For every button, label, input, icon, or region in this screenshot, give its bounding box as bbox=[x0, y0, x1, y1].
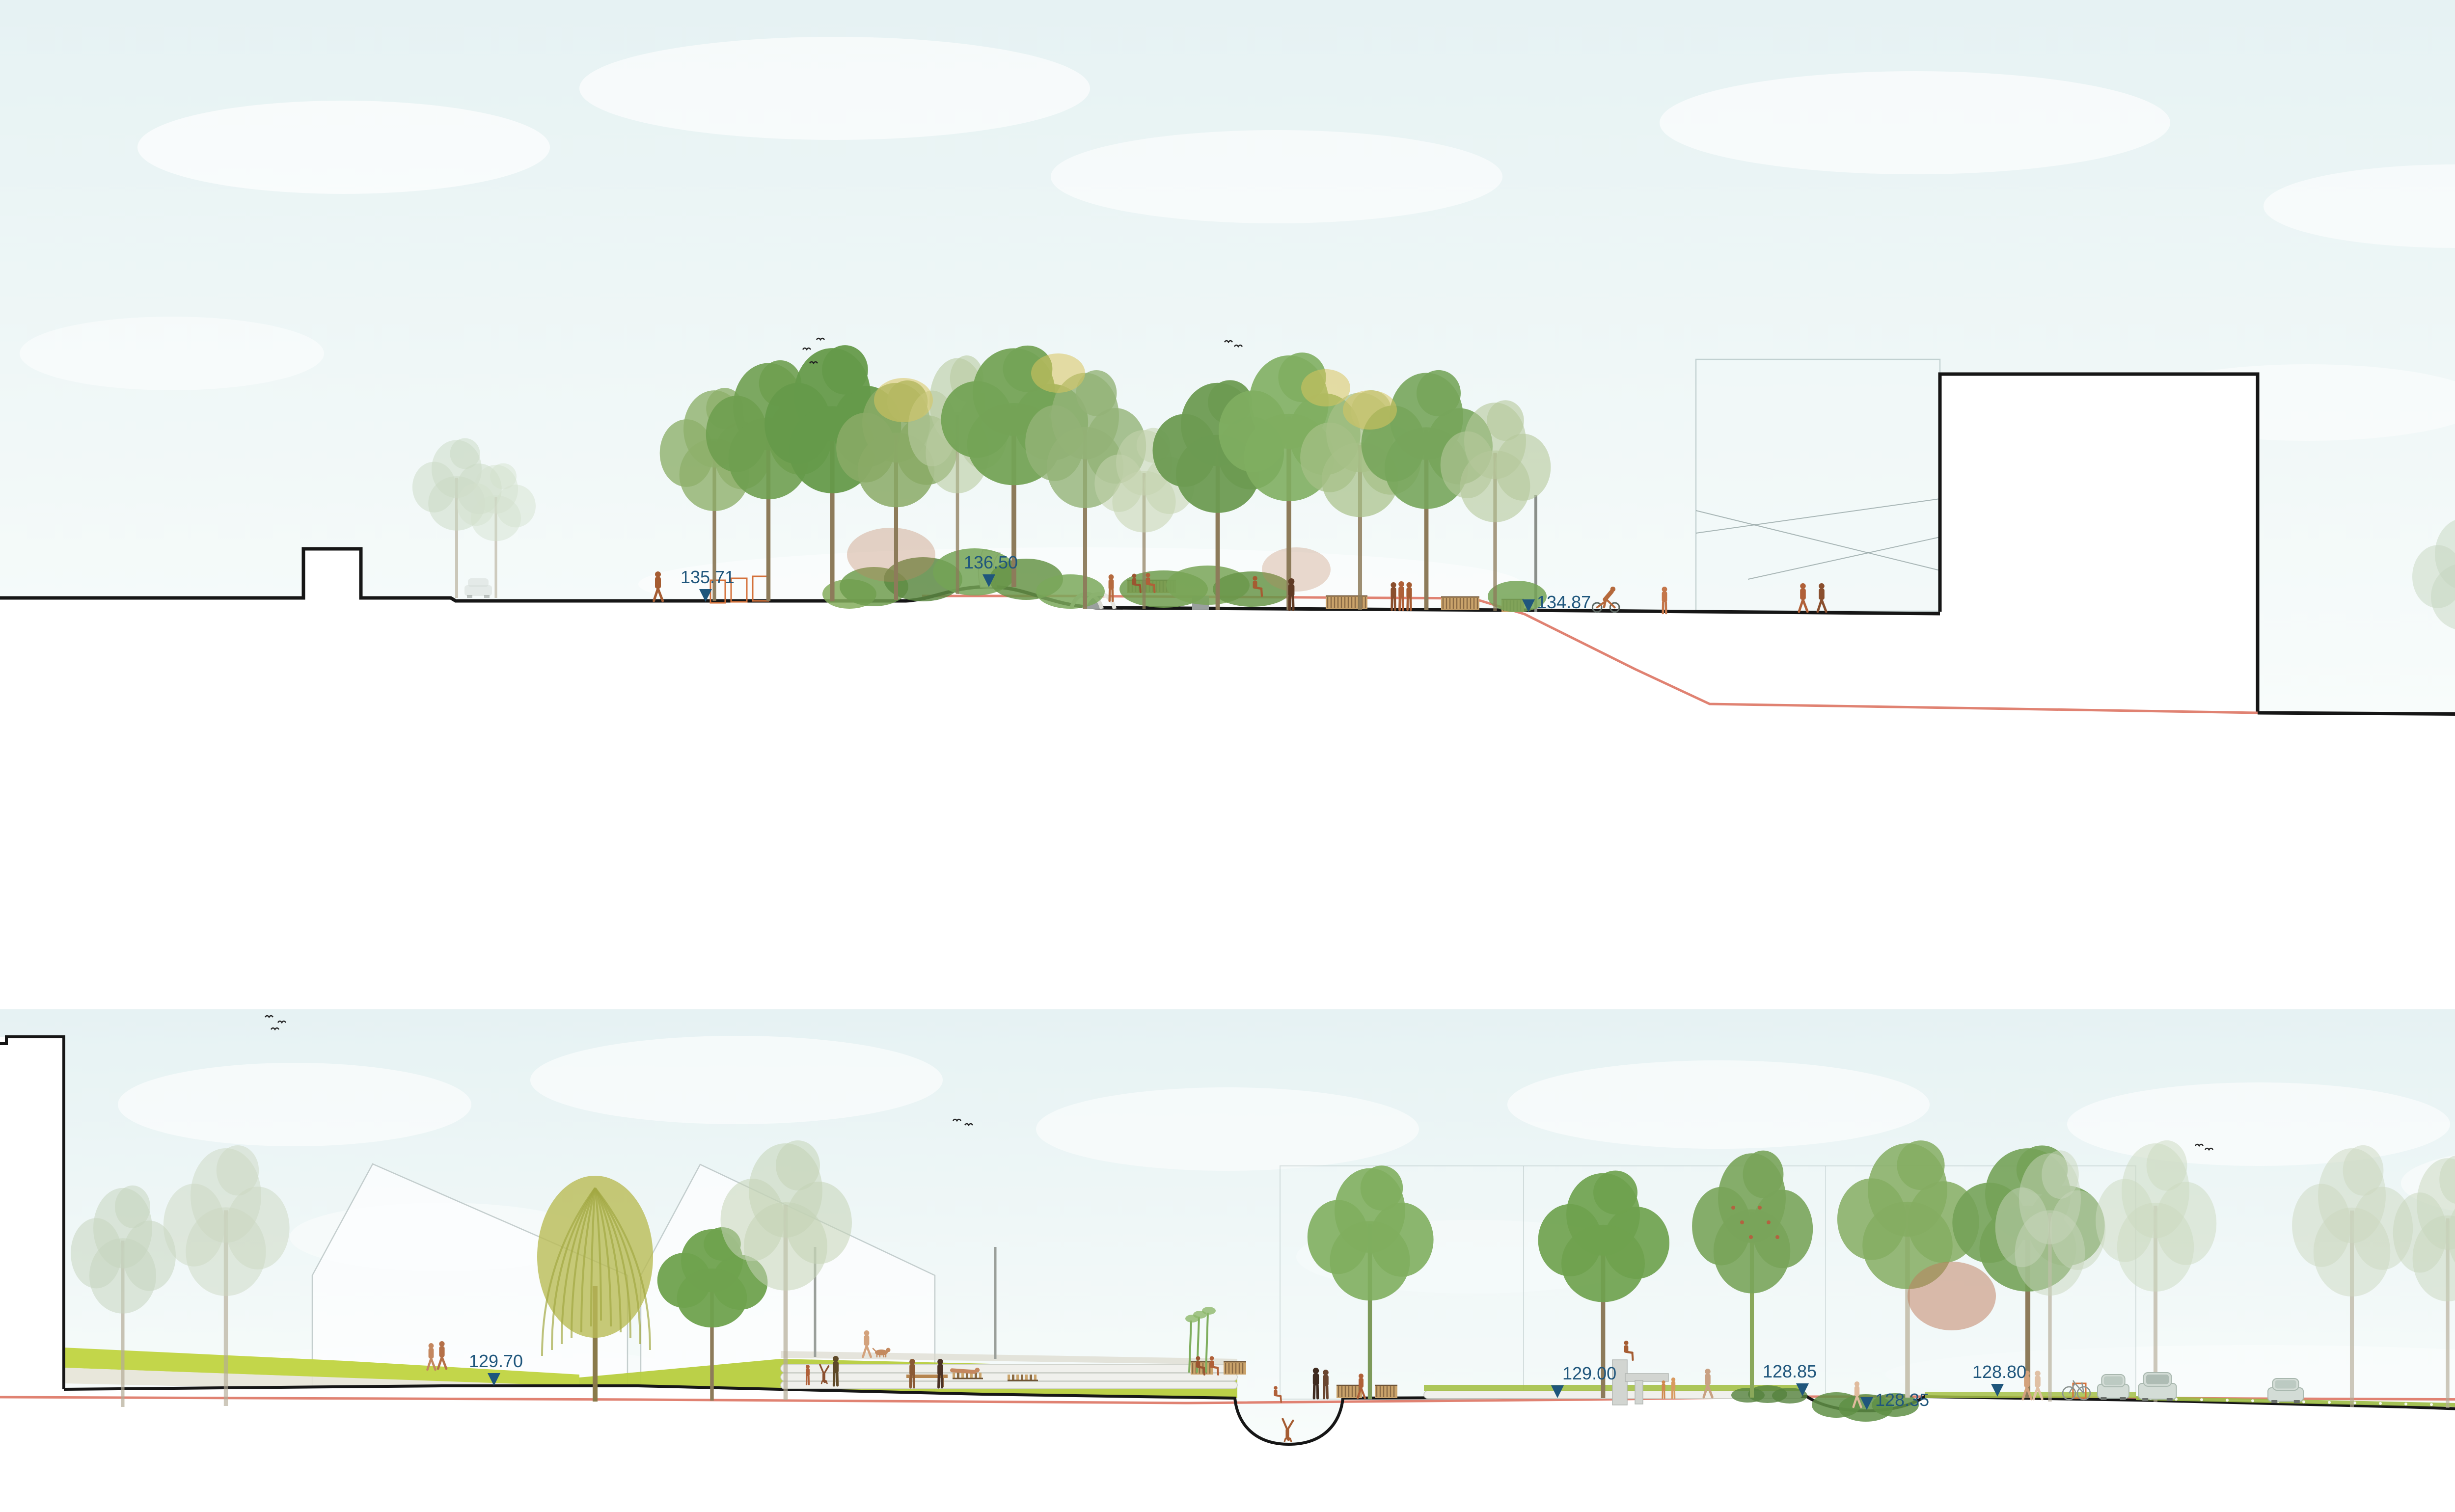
elevation-label: 128.35 bbox=[1875, 1390, 1929, 1410]
car-rear bbox=[2139, 1373, 2177, 1401]
elevation-label: 128.85 bbox=[1763, 1361, 1817, 1381]
car-faint bbox=[464, 578, 492, 598]
elevation-label: 128.80 bbox=[1972, 1362, 2026, 1382]
bench bbox=[1375, 1385, 1397, 1398]
autumn-foliage bbox=[874, 378, 933, 422]
concrete-block bbox=[1625, 1374, 1668, 1381]
section-drawing: 135.71136.50134.87129.70129.00128.85128.… bbox=[0, 0, 2455, 1512]
shrub bbox=[1036, 574, 1105, 609]
autumn-foliage bbox=[1031, 353, 1085, 393]
roll-bench bbox=[781, 1364, 1237, 1373]
landscape-sections-canvas: 135.71136.50134.87129.70129.00128.85128.… bbox=[0, 0, 2455, 1512]
car bbox=[2268, 1378, 2303, 1403]
car bbox=[2098, 1375, 2129, 1400]
elevation-label: 129.00 bbox=[1562, 1363, 1616, 1383]
autumn-foliage bbox=[1301, 369, 1350, 406]
elevation-label: 129.70 bbox=[469, 1351, 523, 1371]
elevation-label: 135.71 bbox=[681, 567, 735, 587]
fern bbox=[1731, 1388, 1765, 1403]
bench bbox=[1224, 1362, 1246, 1375]
elevation-label: 136.50 bbox=[964, 552, 1018, 572]
bench bbox=[1441, 597, 1479, 610]
concrete-block bbox=[1635, 1380, 1643, 1404]
glass-structure bbox=[1696, 359, 1940, 611]
elevation-label: 134.87 bbox=[1537, 592, 1591, 612]
building-top bbox=[1940, 374, 2258, 713]
roll-bench bbox=[781, 1381, 1237, 1389]
autumn-foliage bbox=[1343, 390, 1397, 430]
red-shrub bbox=[1908, 1262, 1996, 1330]
